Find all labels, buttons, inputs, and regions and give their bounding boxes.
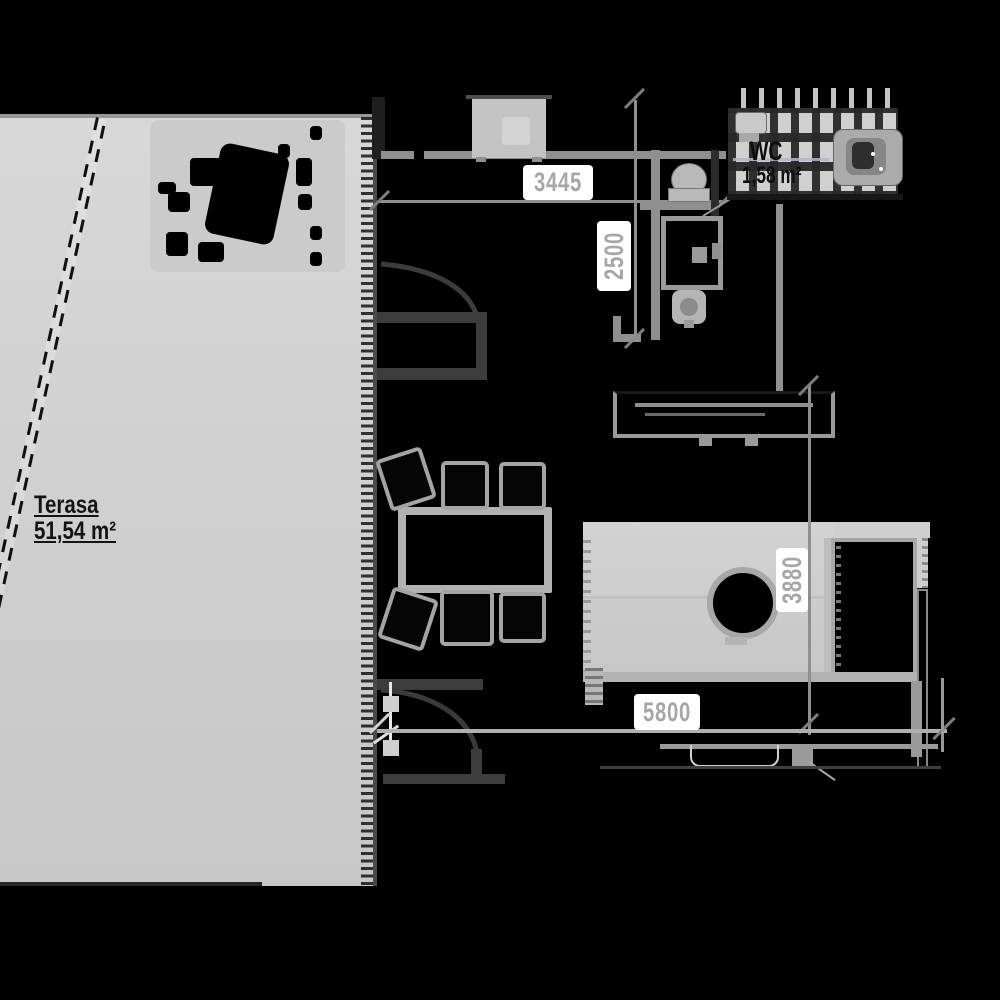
dining-chair [377, 586, 439, 652]
dim-3445-label: 3445 [523, 165, 593, 200]
cistern [735, 112, 767, 134]
dining-table [398, 507, 552, 593]
washbasin [833, 129, 903, 186]
washing-machine [472, 99, 546, 158]
kitchen-bottom-edge [583, 672, 833, 682]
door-hinge-pad [383, 696, 399, 712]
door-jamb [476, 323, 487, 368]
window-mullion [414, 150, 424, 160]
dim-3880-value: 3880 [777, 556, 808, 604]
dim-5800-value: 5800 [643, 697, 691, 728]
dim-3445-value: 3445 [534, 167, 582, 198]
facade-wall-segment [372, 97, 385, 159]
terrace-top-edge [0, 114, 375, 118]
radiator-small [585, 668, 603, 705]
outdoor-lounge-set [150, 120, 345, 272]
dining-chair [375, 446, 437, 512]
island-hatch [836, 546, 841, 668]
tile-wall-ticks [728, 88, 898, 108]
dining-chair [440, 590, 494, 646]
wc-wall-right [711, 150, 719, 224]
kitchen-island [831, 538, 917, 678]
bottom-left-wall [383, 774, 505, 784]
facade-wall-line [373, 117, 377, 886]
dining-chair [499, 592, 546, 643]
dim-2500-line [634, 100, 637, 340]
dim-2500-value: 2500 [599, 232, 630, 280]
door-swing-arc-top [375, 258, 495, 328]
dim-2500-label: 2500 [597, 221, 631, 291]
dim-extension-line [941, 678, 944, 752]
dim-3880-line [808, 385, 811, 735]
kitchen-counter-top [833, 522, 930, 538]
terrace-label: Terasa 51,54 m² [34, 492, 134, 544]
facade-wall-hatch [361, 117, 373, 886]
kitchen-left-hatch [583, 540, 591, 672]
small-washbasin [672, 290, 706, 324]
dim-3880-label: 3880 [776, 548, 808, 612]
round-sink [707, 567, 779, 639]
wc-area: 1,58 m² [742, 162, 807, 190]
toilet-tank [668, 188, 710, 202]
dim-5800-label: 5800 [634, 694, 700, 730]
island-bottom-edge [831, 672, 921, 682]
dining-chair [499, 462, 546, 510]
door-threshold [377, 368, 487, 380]
wall-end [613, 334, 641, 342]
top-wall [381, 151, 726, 159]
sink-tap [725, 637, 747, 645]
sideboard [613, 391, 835, 438]
window-sill [690, 745, 779, 767]
terrace-name: Terasa [34, 492, 116, 518]
bottom-wall-edge [600, 766, 941, 769]
terrace-bottom-edge [0, 882, 262, 886]
shower-valve [712, 243, 721, 259]
door-hinge-pad [383, 740, 399, 756]
dining-chair [441, 461, 489, 510]
terrace-area: 51,54 m² [34, 518, 116, 544]
floor-plan: Terasa 51,54 m² 3445 2500 WC 1,58 m² [0, 0, 1000, 1000]
hall-wall [776, 204, 783, 394]
wc-wall-left [651, 150, 660, 340]
wc-bottom-wall [727, 194, 903, 200]
leader-line [808, 761, 835, 781]
